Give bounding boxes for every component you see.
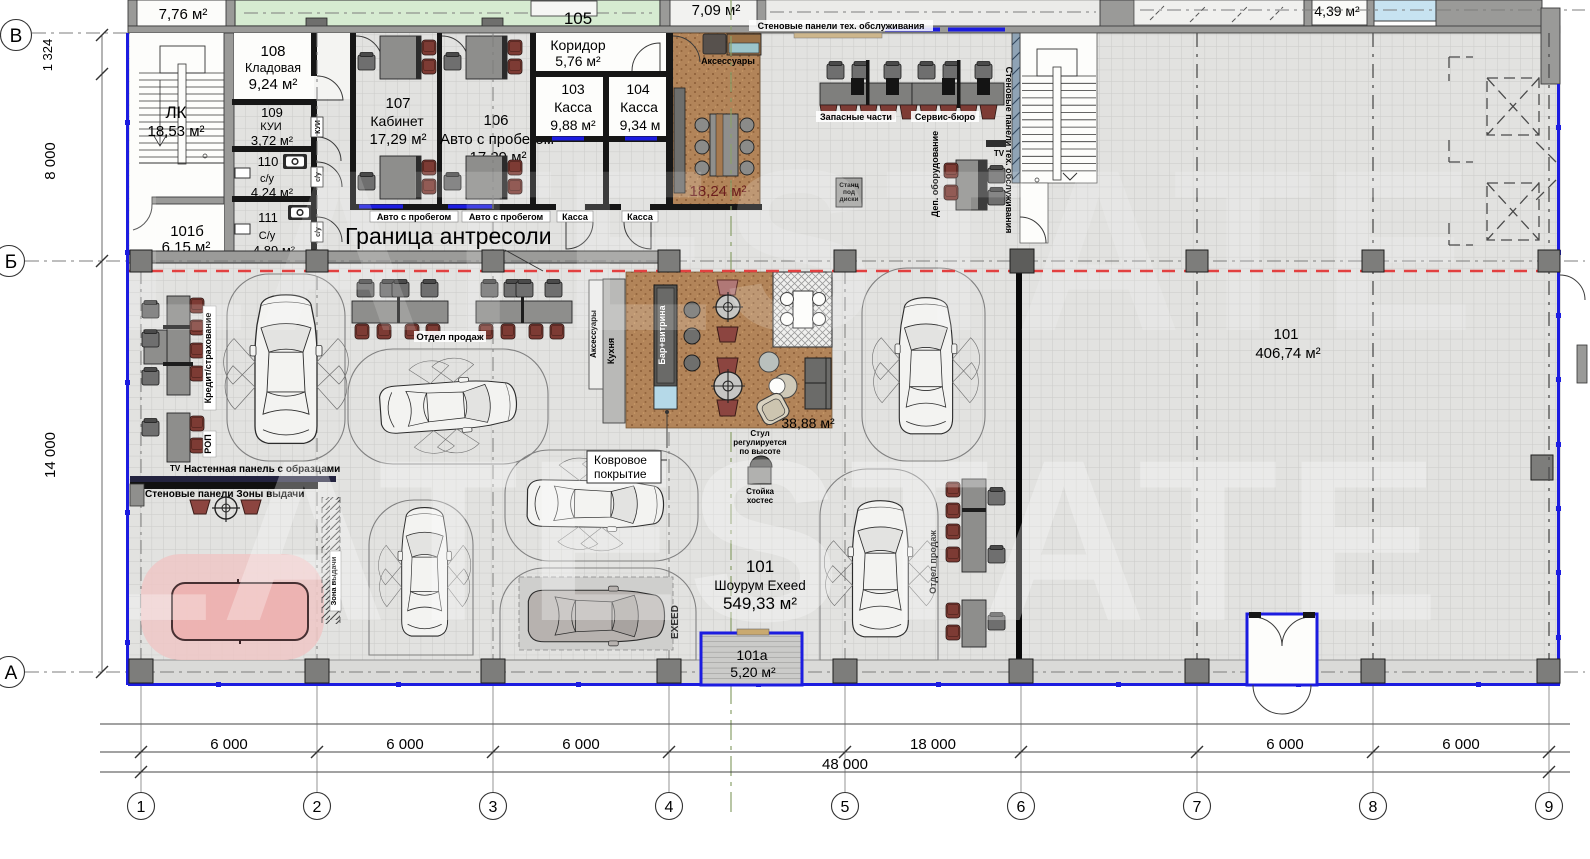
svg-text:Сервис-бюро: Сервис-бюро	[915, 112, 976, 122]
svg-text:103: 103	[561, 81, 585, 97]
svg-text:6 000: 6 000	[210, 736, 248, 753]
svg-text:Запасные части: Запасные части	[820, 112, 892, 122]
svg-text:104: 104	[626, 81, 650, 97]
svg-text:5: 5	[841, 799, 850, 816]
svg-text:Кладовая: Кладовая	[245, 61, 301, 75]
svg-text:6 000: 6 000	[562, 736, 600, 753]
svg-text:Авто с пробегом: Авто с пробегом	[469, 212, 544, 222]
svg-text:5,20 м²: 5,20 м²	[730, 664, 776, 680]
svg-text:101: 101	[746, 557, 774, 576]
svg-text:18 000: 18 000	[910, 736, 956, 753]
svg-text:покрытие: покрытие	[594, 467, 647, 481]
svg-text:Граница антресоли: Граница антресоли	[345, 223, 552, 249]
svg-text:7: 7	[1193, 799, 1202, 816]
svg-text:Коридор: Коридор	[550, 37, 606, 53]
svg-text:Касса: Касса	[554, 99, 592, 115]
svg-text:7,76 м²: 7,76 м²	[159, 6, 208, 23]
svg-text:105: 105	[564, 9, 592, 28]
svg-text:9: 9	[1545, 799, 1554, 816]
svg-text:6 000: 6 000	[1266, 736, 1304, 753]
svg-text:Касса: Касса	[562, 212, 589, 222]
svg-text:101: 101	[1273, 326, 1298, 343]
svg-text:3: 3	[489, 799, 498, 816]
svg-text:Б: Б	[5, 252, 17, 273]
svg-text:Авто с пробегом: Авто с пробегом	[377, 212, 452, 222]
svg-text:109: 109	[261, 105, 283, 120]
svg-text:549,33 м²: 549,33 м²	[723, 594, 797, 613]
svg-text:108: 108	[260, 43, 285, 60]
svg-text:Касса: Касса	[627, 212, 654, 222]
svg-text:6 000: 6 000	[386, 736, 424, 753]
svg-text:6 000: 6 000	[1442, 736, 1480, 753]
svg-text:Шоурум Exeed: Шоурум Exeed	[714, 578, 806, 593]
svg-text:В: В	[10, 26, 23, 47]
svg-text:4,39 м²: 4,39 м²	[1314, 3, 1360, 19]
svg-text:Ковровое: Ковровое	[594, 453, 647, 467]
svg-text:4: 4	[665, 799, 674, 816]
svg-text:ЛК: ЛК	[165, 103, 186, 122]
svg-text:А: А	[5, 663, 18, 684]
svg-text:101а: 101а	[736, 647, 767, 663]
svg-text:5,76 м²: 5,76 м²	[555, 53, 601, 69]
svg-text:107: 107	[385, 95, 410, 112]
svg-text:Стеновые панели тех. обслужива: Стеновые панели тех. обслуживания	[758, 21, 925, 31]
svg-text:14 000: 14 000	[42, 432, 59, 478]
svg-text:8: 8	[1369, 799, 1378, 816]
svg-text:Касса: Касса	[620, 99, 658, 115]
svg-text:6: 6	[1017, 799, 1026, 816]
svg-text:48 000: 48 000	[822, 756, 868, 773]
svg-text:8 000: 8 000	[42, 142, 59, 180]
svg-text:Аксессуары: Аксессуары	[701, 56, 755, 66]
svg-text:1: 1	[137, 799, 146, 816]
svg-text:9,24 м²: 9,24 м²	[249, 76, 298, 93]
svg-text:406,74 м²: 406,74 м²	[1255, 345, 1320, 362]
svg-text:1 324: 1 324	[40, 39, 55, 72]
svg-text:7,09 м²: 7,09 м²	[692, 2, 741, 19]
svg-text:2: 2	[313, 799, 322, 816]
